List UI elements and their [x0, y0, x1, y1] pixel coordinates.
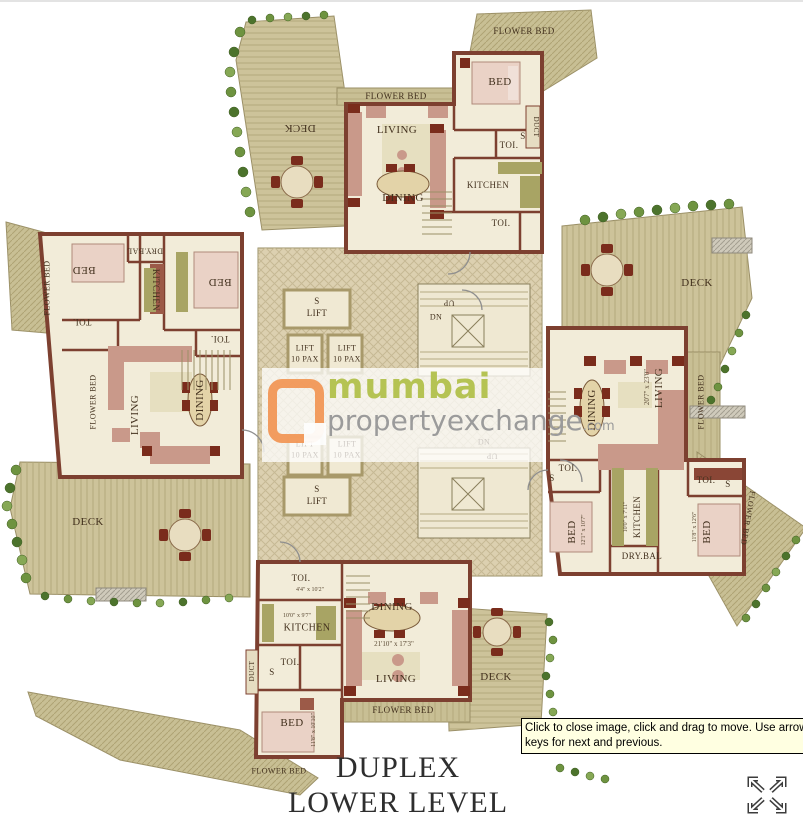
plan-title: DUPLEX LOWER LEVEL	[248, 750, 548, 819]
unit-left	[40, 234, 242, 477]
watermark-brand: mumbai	[327, 368, 492, 406]
mumbai-propertyexchange-logo-icon	[268, 379, 324, 443]
deck-bottom-left	[10, 462, 250, 597]
viewer-tooltip: Click to close image, click and drag to …	[521, 718, 803, 754]
plan-title-line2: LOWER LEVEL	[248, 785, 548, 819]
image-viewer[interactable]: DECKFLOWER BEDBEDFLOWER BEDLIVINGTOI.SDU…	[0, 0, 803, 819]
plan-title-line1: DUPLEX	[248, 750, 548, 785]
unit-top	[346, 53, 542, 252]
watermark-tld: .com	[583, 419, 615, 434]
unit-bottom	[246, 562, 470, 757]
watermark-brand2: propertyexchange.com	[327, 406, 615, 442]
stair-core-top	[418, 284, 530, 376]
move-cursor-icon[interactable]	[738, 772, 796, 818]
watermark: mumbai propertyexchange.com	[262, 368, 546, 462]
deck-top-left	[236, 16, 346, 230]
